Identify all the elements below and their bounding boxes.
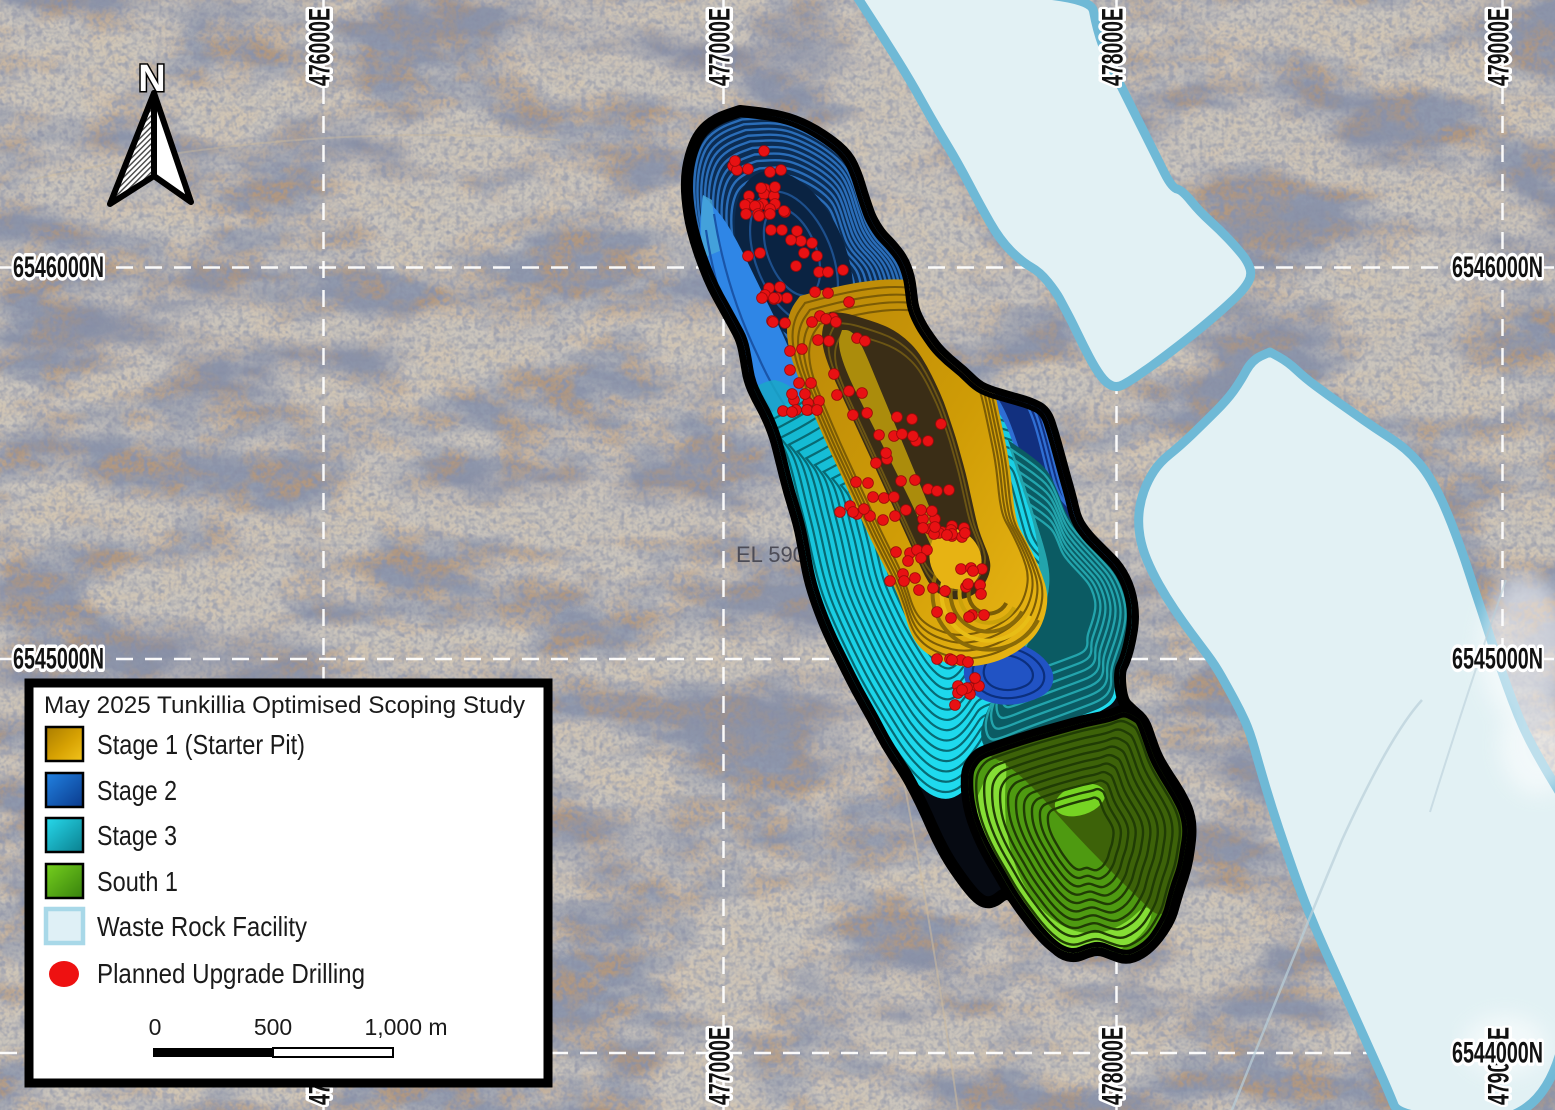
svg-text:477000E: 477000E — [704, 8, 737, 86]
svg-text:May 2025 Tunkillia Optimised S: May 2025 Tunkillia Optimised Scoping Stu… — [44, 692, 525, 719]
svg-text:6546000N: 6546000N — [1452, 251, 1543, 284]
svg-text:Stage 3: Stage 3 — [97, 820, 177, 851]
svg-text:South 1: South 1 — [97, 866, 178, 897]
svg-text:N: N — [138, 58, 165, 100]
svg-text:1,000 m: 1,000 m — [364, 1014, 447, 1040]
svg-text:0: 0 — [149, 1014, 162, 1040]
svg-text:6544000N: 6544000N — [1452, 1037, 1543, 1070]
svg-text:476000E: 476000E — [304, 8, 337, 86]
svg-text:479000E: 479000E — [1483, 8, 1516, 86]
svg-text:Planned Upgrade Drilling: Planned Upgrade Drilling — [97, 958, 365, 989]
svg-text:Stage 1 (Starter Pit): Stage 1 (Starter Pit) — [97, 729, 305, 760]
svg-text:Stage 2: Stage 2 — [97, 775, 177, 806]
svg-text:Waste Rock Facility: Waste Rock Facility — [97, 911, 307, 942]
svg-text:500: 500 — [254, 1014, 292, 1040]
svg-text:6545000N: 6545000N — [13, 643, 104, 676]
svg-text:478000E: 478000E — [1097, 1027, 1130, 1105]
svg-text:478000E: 478000E — [1097, 8, 1130, 86]
svg-text:6545000N: 6545000N — [1452, 643, 1543, 676]
svg-text:477000E: 477000E — [704, 1027, 737, 1105]
svg-text:6546000N: 6546000N — [13, 251, 104, 284]
